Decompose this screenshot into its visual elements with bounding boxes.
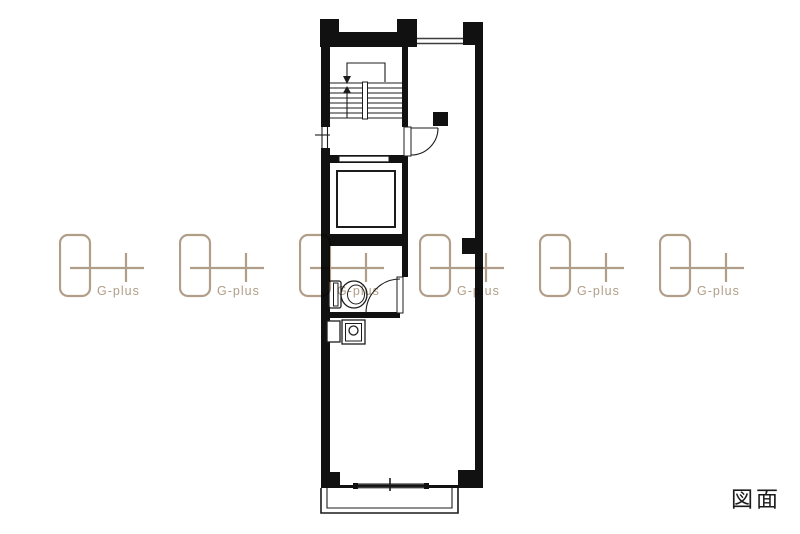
elevator — [337, 171, 395, 227]
window-stair — [315, 127, 331, 148]
screenshot-canvas: G-plus G-plus G-plus G-plus G-plus — [0, 0, 800, 534]
balcony — [321, 488, 458, 513]
drawing-title-label: 図面 — [731, 487, 781, 513]
toilet-door — [366, 277, 403, 313]
sink-drain-icon — [349, 326, 358, 335]
window-top — [417, 39, 463, 44]
window-bottom — [353, 478, 429, 491]
floor-plan — [0, 0, 800, 534]
entry-door — [404, 127, 438, 156]
staircase — [330, 63, 402, 119]
elevator-hall-door — [339, 156, 389, 162]
toilet — [329, 281, 367, 308]
kitchen-counter — [327, 320, 365, 344]
walls — [320, 19, 483, 488]
